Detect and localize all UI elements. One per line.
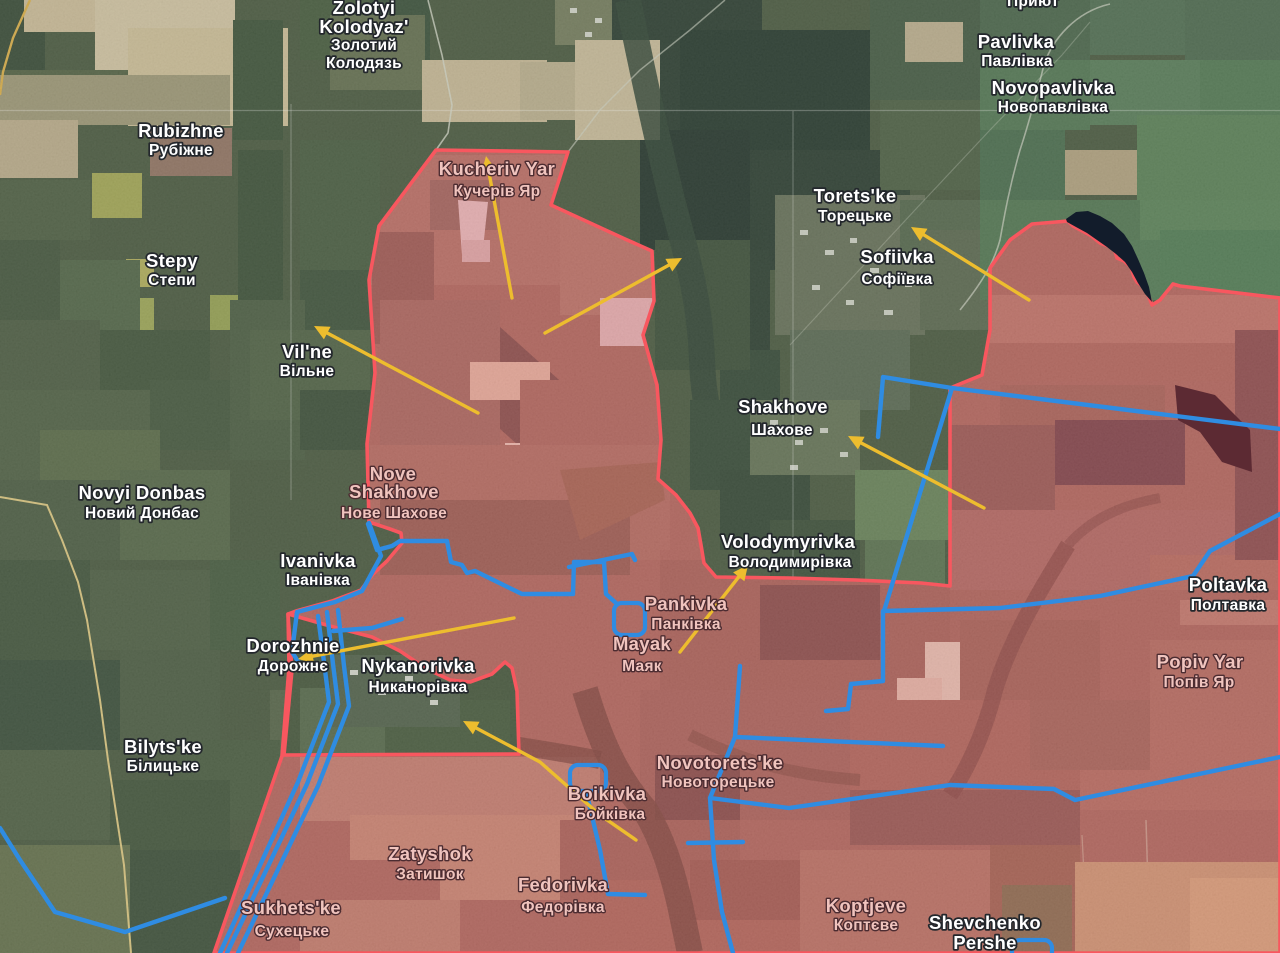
svg-text:Nykanorivka: Nykanorivka	[361, 655, 475, 676]
svg-text:Іванівка: Іванівка	[286, 572, 350, 589]
svg-text:Новоторецьке: Новоторецьке	[661, 774, 774, 791]
svg-text:Дорожнє: Дорожнє	[258, 658, 329, 675]
svg-text:Білицьке: Білицьке	[127, 758, 200, 775]
svg-text:Sofiivka: Sofiivka	[860, 246, 934, 267]
svg-text:Бойківка: Бойківка	[575, 806, 646, 823]
svg-text:Попів Яр: Попів Яр	[1163, 674, 1234, 691]
svg-text:Pavlivka: Pavlivka	[978, 31, 1055, 52]
svg-text:Софіївка: Софіївка	[861, 271, 932, 288]
svg-text:Рубіжне: Рубіжне	[149, 142, 213, 159]
svg-text:Новопавлівка: Новопавлівка	[998, 99, 1108, 116]
svg-text:Панківка: Панківка	[651, 616, 721, 633]
svg-text:Павлівка: Павлівка	[981, 53, 1053, 70]
svg-text:Poltavka: Poltavka	[1189, 574, 1268, 595]
svg-text:Stepy: Stepy	[146, 250, 198, 271]
svg-text:Bilyts'ke: Bilyts'ke	[124, 736, 202, 757]
svg-text:Koptjeve: Koptjeve	[826, 895, 907, 916]
svg-text:Novotorets'ke: Novotorets'ke	[657, 752, 784, 773]
svg-text:Novopavlivka: Novopavlivka	[992, 77, 1115, 98]
svg-text:Полтавка: Полтавка	[1191, 597, 1266, 614]
svg-text:Kolodyaz': Kolodyaz'	[319, 16, 408, 37]
svg-text:Степи: Степи	[148, 272, 196, 289]
svg-text:Sukhets'ke: Sukhets'ke	[241, 897, 341, 918]
svg-text:Шахове: Шахове	[751, 422, 813, 439]
svg-text:Kucheriv Yar: Kucheriv Yar	[439, 158, 555, 179]
svg-text:Rubizhne: Rubizhne	[138, 120, 224, 141]
svg-text:Золотий: Золотий	[331, 37, 397, 54]
svg-text:Коптєве: Коптєве	[834, 917, 899, 934]
svg-text:Shakhove: Shakhove	[349, 481, 439, 502]
svg-text:Затишок: Затишок	[396, 866, 464, 883]
svg-text:Ivanivka: Ivanivka	[280, 550, 356, 571]
svg-text:Володимирівка: Володимирівка	[728, 554, 851, 571]
svg-text:Федорівка: Федорівка	[521, 899, 605, 916]
svg-text:Торецьке: Торецьке	[818, 208, 892, 225]
svg-text:Vil'ne: Vil'ne	[282, 341, 332, 362]
svg-text:Shevchenko: Shevchenko	[929, 912, 1041, 933]
svg-text:Popiv Yar: Popiv Yar	[1157, 651, 1244, 672]
svg-text:Volodymyrivka: Volodymyrivka	[721, 531, 856, 552]
svg-text:Shakhove: Shakhove	[738, 396, 828, 417]
svg-text:Маяк: Маяк	[622, 658, 662, 675]
svg-text:Zatyshok: Zatyshok	[388, 843, 472, 864]
svg-text:Кучерів Яр: Кучерів Яр	[454, 183, 541, 200]
svg-text:Pankivka: Pankivka	[645, 593, 728, 614]
svg-text:Нове Шахове: Нове Шахове	[341, 505, 447, 522]
svg-text:Fedorivka: Fedorivka	[518, 874, 609, 895]
svg-text:Torets'ke: Torets'ke	[814, 185, 897, 206]
svg-text:Вільне: Вільне	[280, 363, 335, 380]
svg-text:Mayak: Mayak	[613, 633, 671, 654]
svg-text:Dorozhnie: Dorozhnie	[246, 635, 339, 656]
svg-text:Новий Донбас: Новий Донбас	[85, 505, 199, 522]
svg-text:Boikivka: Boikivka	[568, 783, 647, 804]
svg-text:Pershe: Pershe	[953, 932, 1017, 953]
svg-text:Novyi Donbas: Novyi Donbas	[79, 482, 206, 503]
svg-text:Колодязь: Колодязь	[326, 55, 402, 72]
svg-text:Приют: Приют	[1007, 0, 1059, 10]
svg-text:Сухецьке: Сухецьке	[255, 923, 330, 940]
svg-text:Никанорівка: Никанорівка	[369, 679, 468, 696]
